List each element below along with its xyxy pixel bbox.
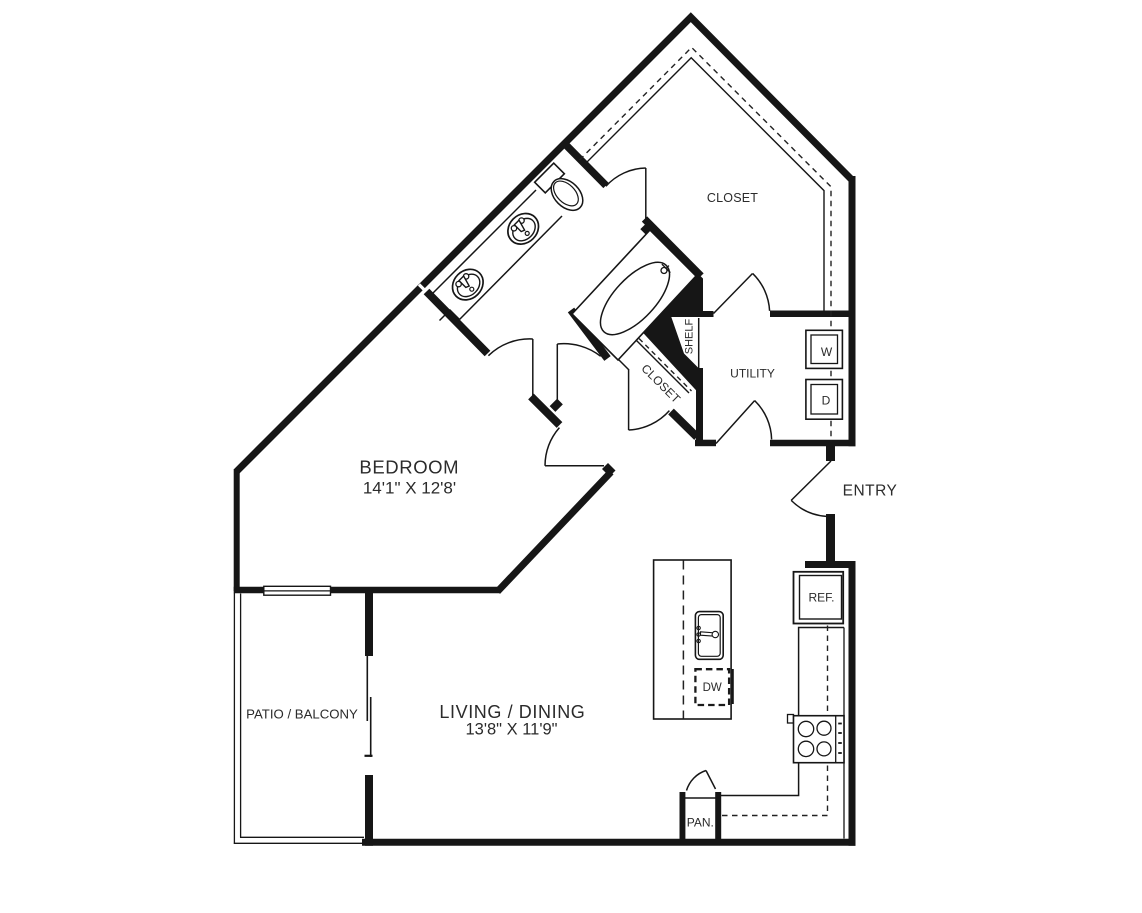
svg-text:DW: DW <box>703 682 722 694</box>
svg-text:PATIO / BALCONY: PATIO / BALCONY <box>246 707 358 722</box>
svg-text:CLOSET: CLOSET <box>707 191 758 205</box>
svg-text:REF.: REF. <box>808 590 834 604</box>
svg-text:W: W <box>821 345 833 359</box>
svg-text:UTILITY: UTILITY <box>730 367 775 381</box>
svg-text:D: D <box>822 394 831 408</box>
svg-text:LIVING / DINING: LIVING / DINING <box>439 702 585 722</box>
svg-text:PAN.: PAN. <box>687 816 714 830</box>
svg-text:13'8" X 11'9": 13'8" X 11'9" <box>465 720 557 738</box>
svg-text:SHELF: SHELF <box>684 318 696 354</box>
svg-text:BEDROOM: BEDROOM <box>359 456 459 477</box>
svg-text:14'1" X 12'8': 14'1" X 12'8' <box>363 478 456 497</box>
svg-text:ENTRY: ENTRY <box>843 483 898 500</box>
